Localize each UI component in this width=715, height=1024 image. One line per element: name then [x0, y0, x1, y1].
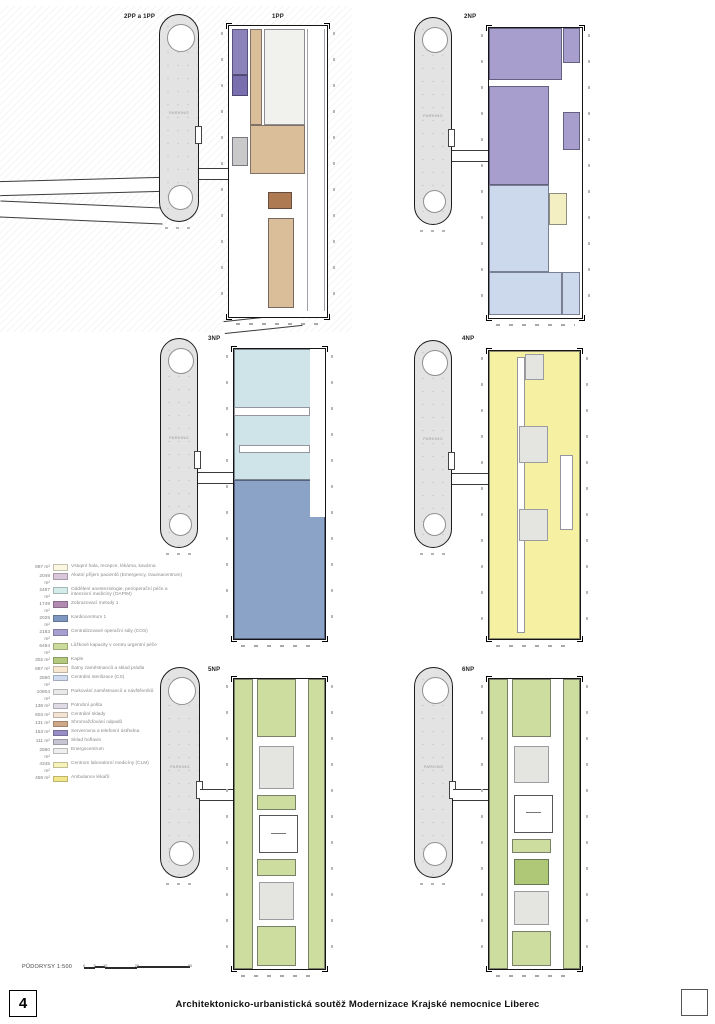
legend-label: Akutní příjem pacientů (Emergency, traum…: [71, 573, 182, 578]
legend-row: 697 m²Šatny zaměstnanců a sklad prádla: [33, 666, 218, 675]
plan-zone-violet: [489, 28, 562, 80]
plan-zone-white: [259, 815, 297, 853]
legend: 697 m²Vstupní hala, recepce, lékárna, ka…: [33, 564, 218, 784]
legend-label: Zobrazovací metody 1: [71, 601, 118, 606]
tower-circle-top: [422, 350, 448, 376]
plan-zone-greenDark: [514, 859, 549, 885]
floor-label-6np: 6NP: [462, 667, 474, 673]
floor-plan-4np: [488, 350, 581, 640]
plan-dimension-ticks: [236, 323, 320, 325]
floor-label-2np: 2NP: [464, 14, 476, 20]
legend-swatch: [53, 657, 68, 663]
plan-zone-white: [307, 29, 325, 311]
plan-zone-grayTech: [519, 509, 548, 541]
plan-side-ticks: [331, 355, 333, 633]
tower-dimension-ticks: [166, 553, 192, 555]
plan-zone-blue: [489, 272, 562, 316]
legend-area: 1749 m²: [33, 601, 50, 615]
legend-label: Kaple: [71, 657, 83, 662]
legend-area: 2467 m²: [33, 587, 50, 601]
legend-area: 603 m²: [33, 712, 50, 719]
plan-dimension-ticks: [241, 645, 318, 647]
plan-zone-purple: [232, 29, 248, 76]
legend-swatch: [53, 564, 68, 570]
tower-notch: [194, 451, 201, 469]
plan-side-ticks: [226, 355, 228, 633]
plan-zone-purpleDark: [232, 75, 248, 95]
floor-plan-6np: [488, 678, 581, 970]
legend-swatch: [53, 689, 68, 695]
tower-circle-bottom: [423, 513, 446, 536]
legend-swatch: [53, 748, 68, 754]
plan-zone-blue: [562, 272, 581, 316]
tower-circle-bottom: [169, 513, 192, 536]
plan-dimension-ticks: [496, 645, 573, 647]
plan-side-ticks: [586, 357, 588, 633]
scale-tick-label: 25: [135, 963, 139, 968]
floor-plan-3np: [233, 348, 326, 640]
legend-row: 697 m²Vstupní hala, recepce, lékárna, ka…: [33, 564, 218, 573]
scale-label: PŮDORYSY 1:500: [22, 964, 72, 970]
legend-row: 2049 m²Akutní příjem pacientů (Emergency…: [33, 573, 218, 587]
plan-corner-mark: [324, 314, 330, 320]
plan-zone-white: [560, 455, 573, 530]
legend-area: 697 m²: [33, 564, 50, 571]
parking-tower-3np: PARKING: [160, 338, 198, 548]
plan-corner-mark: [226, 314, 232, 320]
legend-area: 2049 m²: [33, 573, 50, 587]
scale-bar-segment: [137, 965, 190, 968]
plan-dimension-ticks: [241, 975, 318, 977]
plan-side-ticks: [481, 34, 483, 312]
floor-label-1pp: 1PP: [272, 14, 284, 20]
legend-row: 131 m²Shromažďování odpadů: [33, 720, 218, 729]
parking-tower-1pp: PARKING: [159, 14, 199, 222]
legend-label: Centralizované operační sály (COS): [71, 629, 148, 634]
legend-swatch: [53, 675, 68, 681]
legend-row: 138 m²Potrubní pošta: [33, 703, 218, 712]
plan-side-ticks: [588, 34, 590, 312]
legend-swatch: [53, 739, 68, 745]
legend-row: 111 m²Sklad hořlavin: [33, 738, 218, 747]
legend-label: Kardiocentrum 1: [71, 615, 106, 620]
legend-swatch: [53, 721, 68, 727]
legend-swatch: [53, 666, 68, 672]
parking-tower-2np: PARKING: [414, 17, 452, 225]
legend-area: 459 m²: [33, 775, 50, 782]
legend-area: 2550 m²: [33, 675, 50, 689]
tower-label: PARKING: [160, 110, 198, 115]
legend-area: 302 m²: [33, 657, 50, 664]
legend-swatch: [53, 703, 68, 709]
plan-zone-green: [257, 795, 296, 810]
legend-area: 10804 m²: [33, 689, 50, 703]
plan-zone-green: [563, 679, 580, 969]
legend-row: 603 m²Centrální sklady: [33, 712, 218, 721]
tower-label: PARKING: [415, 436, 451, 441]
tower-circle-bottom: [169, 841, 194, 866]
plan-zone-green: [308, 679, 325, 969]
link-bridge-5np: [200, 789, 233, 801]
plan-zone-grayTech: [259, 882, 294, 920]
tower-dimension-ticks: [165, 227, 193, 229]
legend-area: 697 m²: [33, 666, 50, 673]
tower-circle-top: [422, 27, 448, 53]
floor-plan-2np: [488, 27, 583, 319]
plan-side-ticks: [481, 357, 483, 633]
tower-notch: [448, 129, 455, 147]
legend-label: Lůžkové kapacity v centru urgentní péče: [71, 643, 157, 648]
scale-bar-segment: [105, 967, 137, 970]
scale-tick-label: 0: [83, 963, 85, 968]
plan-zone-white: [517, 357, 525, 633]
floor-label-4np: 4NP: [462, 336, 474, 342]
plan-side-ticks: [331, 685, 333, 963]
scale-tick-label: 5: [93, 963, 95, 968]
legend-row: 2550 m²Centrální sterilizace (CS): [33, 675, 218, 689]
plan-zone-grayTech: [514, 746, 549, 784]
plan-zone-green: [257, 926, 296, 967]
legend-label: Energocentrum: [71, 747, 104, 752]
parking-tower-4np: PARKING: [414, 340, 452, 548]
tower-dimension-ticks: [420, 883, 447, 885]
tower-dimension-ticks: [420, 553, 446, 555]
legend-area: 153 m²: [33, 729, 50, 736]
legend-row: 2183 m²Centralizované operační sály (COS…: [33, 629, 218, 643]
tower-circle-top: [168, 348, 194, 374]
plan-zone-violet: [563, 28, 580, 63]
plan-zone-green: [257, 679, 296, 737]
legend-label: Serverovna a telefonní ústředna: [71, 729, 139, 734]
legend-area: 131 m²: [33, 720, 50, 727]
legend-label: Centrum laboratorní medicíny (CLM): [71, 761, 149, 766]
plan-side-ticks: [481, 685, 483, 963]
plan-dimension-ticks: [496, 324, 575, 326]
tower-circle-top: [422, 677, 449, 704]
tower-dimension-ticks: [166, 883, 194, 885]
legend-label: Centrální sterilizace (CS): [71, 675, 124, 680]
plan-zone-tan: [250, 29, 263, 125]
legend-label: Sklad hořlavin: [71, 738, 101, 743]
plan-side-ticks: [221, 32, 223, 311]
floor-label-3np: 3NP: [208, 336, 220, 342]
plan-zone-brown: [268, 192, 292, 209]
tower-label: PARKING: [415, 764, 452, 769]
tower-circle-bottom: [168, 185, 193, 210]
legend-area: 138 m²: [33, 703, 50, 710]
tower-notch: [195, 126, 202, 144]
plan-zone-violet: [489, 86, 549, 185]
corner-box: [681, 989, 708, 1016]
legend-row: 153 m²Serverovna a telefonní ústředna: [33, 729, 218, 738]
plan-zone-yellowBlk: [549, 193, 568, 225]
legend-row: 6494 m²Lůžkové kapacity v centru urgentn…: [33, 643, 218, 657]
scale-bar: 05102550: [84, 963, 190, 973]
legend-label: Ambulance lékařů: [71, 775, 109, 780]
legend-area: 2183 m²: [33, 629, 50, 643]
plan-zone-grayTech: [525, 354, 543, 380]
plan-zone-grayTech: [259, 746, 294, 790]
plan-zone-grayTech: [519, 426, 548, 463]
legend-swatch: [53, 712, 68, 718]
legend-swatch: [53, 762, 68, 768]
parking-tower-6np: PARKING: [414, 667, 453, 878]
legend-swatch: [53, 643, 68, 649]
plan-dimension-ticks: [496, 975, 573, 977]
plan-zone-green: [234, 679, 253, 969]
legend-label: Šatny zaměstnanců a sklad prádla: [71, 666, 144, 671]
legend-swatch: [53, 629, 68, 635]
plan-zone-green: [489, 679, 508, 969]
plan-zone-grayTech: [514, 891, 549, 926]
plan-zone-violet: [563, 112, 580, 150]
plan-zone-green: [512, 839, 551, 854]
legend-swatch: [53, 573, 68, 579]
plan-side-ticks: [333, 32, 335, 311]
tower-dimension-ticks: [420, 230, 446, 232]
scale-tick-label: 10: [103, 963, 107, 968]
plan-zone-tan: [268, 218, 293, 308]
tower-circle-bottom: [423, 842, 447, 866]
plan-zone-white: [310, 349, 325, 517]
legend-row: 2467 m²Oddělení anesteziologie, perioper…: [33, 587, 218, 601]
legend-label: Shromažďování odpadů: [71, 720, 122, 725]
plan-zone-green: [257, 859, 296, 876]
legend-swatch: [53, 601, 68, 607]
plan-side-ticks: [226, 685, 228, 963]
legend-area: 6494 m²: [33, 643, 50, 657]
legend-area: 2025 m²: [33, 615, 50, 629]
legend-row: 4345 m²Centrum laboratorní medicíny (CLM…: [33, 761, 218, 775]
legend-label: Potrubní pošta: [71, 703, 102, 708]
floor-plan-5np: [233, 678, 326, 970]
plan-zone-hall: [264, 29, 305, 125]
plan-zone-blue: [489, 185, 549, 272]
legend-swatch: [53, 730, 68, 736]
link-bridge-1pp: [199, 168, 228, 180]
scale-tick-label: 50: [188, 963, 192, 968]
plan-zone-white: [234, 407, 310, 416]
plan-zone-grayRoom: [232, 137, 248, 166]
legend-label: Parkování zaměstnanců a návštěvníků: [71, 689, 153, 694]
legend-label: Oddělení anesteziologie, perioperační pé…: [71, 587, 189, 598]
plan-zone-tan: [250, 125, 306, 174]
legend-row: 10804 m²Parkování zaměstnanců a návštěvn…: [33, 689, 218, 703]
tower-label: PARKING: [415, 113, 451, 118]
plan-corner-mark: [486, 315, 492, 321]
tower-notch: [448, 452, 455, 470]
sheet-title: Architektonicko-urbanistická soutěž Mode…: [0, 999, 715, 1010]
legend-row: 2025 m²Kardiocentrum 1: [33, 615, 218, 629]
legend-area: 2580 m²: [33, 747, 50, 761]
plan-corner-mark: [579, 315, 585, 321]
legend-swatch: [53, 615, 68, 621]
tower-circle-top: [167, 24, 195, 52]
legend-row: 2580 m²Energocentrum: [33, 747, 218, 761]
legend-label: Centrální sklady: [71, 712, 105, 717]
plan-zone-green: [512, 679, 551, 737]
legend-row: 1749 m²Zobrazovací metody 1: [33, 601, 218, 615]
legend-area: 4345 m²: [33, 761, 50, 775]
legend-area: 111 m²: [33, 738, 50, 745]
tower-label: PARKING: [161, 435, 197, 440]
floor-label-garage: 2PP a 1PP: [124, 14, 155, 20]
legend-row: 459 m²Ambulance lékařů: [33, 775, 218, 784]
plan-zone-green: [512, 931, 551, 966]
tower-circle-bottom: [423, 190, 446, 213]
plan-zone-white: [514, 795, 552, 833]
floor-plan-1pp: [228, 25, 328, 318]
legend-swatch: [53, 587, 68, 593]
plan-zone-white: [239, 445, 310, 454]
legend-label: Vstupní hala, recepce, lékárna, kavárna: [71, 564, 156, 569]
legend-row: 302 m²Kaple: [33, 657, 218, 666]
legend-swatch: [53, 776, 68, 782]
plan-side-ticks: [586, 685, 588, 963]
drawing-sheet: 1PP2PP a 1PPPARKING2NPPARKING3NPPARKING4…: [0, 0, 715, 1024]
